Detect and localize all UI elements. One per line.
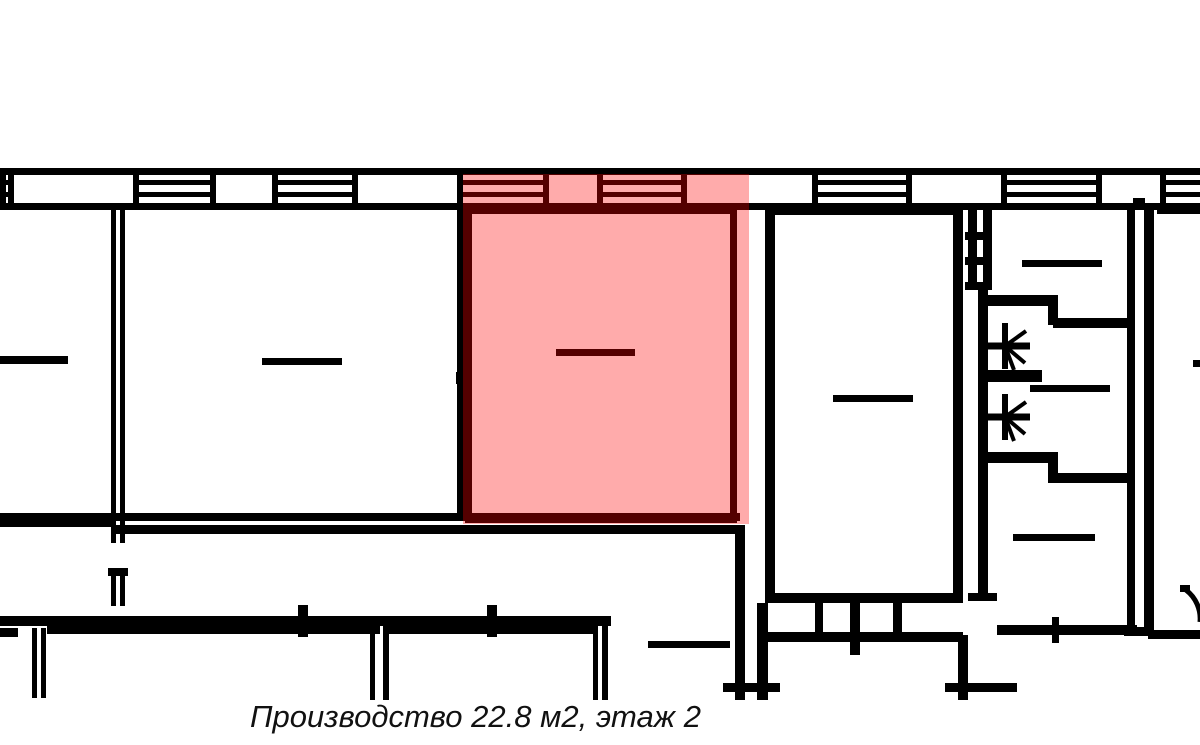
wall-segment	[723, 683, 780, 692]
floor-plan: Производство 22.8 м2, этаж 2	[0, 0, 1200, 745]
window-symbol	[138, 180, 210, 185]
window-divider	[352, 168, 358, 210]
window-symbol	[0, 192, 8, 197]
wall-segment	[383, 626, 389, 700]
wall-segment	[47, 626, 380, 634]
window-divider	[8, 168, 14, 210]
wall-segment	[111, 576, 116, 606]
window-symbol	[277, 192, 352, 197]
mark-line	[1193, 360, 1200, 367]
mark-line	[1013, 534, 1095, 541]
window-divider	[906, 168, 912, 210]
floor-plan-caption: Производство 22.8 м2, этаж 2	[250, 699, 701, 735]
wall-segment	[997, 625, 1137, 635]
mark-line	[262, 358, 342, 365]
window-symbol	[818, 180, 912, 185]
wall-segment	[988, 370, 1042, 382]
window-symbol	[138, 192, 210, 197]
door-arc	[1186, 590, 1200, 622]
window-symbol	[818, 192, 912, 197]
wall-segment	[765, 593, 963, 603]
mark-line	[1022, 260, 1102, 267]
wall-segment	[968, 205, 977, 290]
window-divider	[272, 168, 278, 210]
mark-line	[0, 356, 68, 364]
wall-segment	[32, 628, 37, 698]
wall-segment	[1053, 473, 1135, 483]
window-divider	[133, 168, 139, 210]
window-divider	[1160, 168, 1166, 210]
wall-segment	[602, 616, 608, 700]
window-symbol	[1165, 180, 1200, 185]
wall-segment	[386, 626, 597, 634]
wall-segment	[965, 257, 992, 265]
wall-segment	[953, 205, 963, 603]
wall-segment	[988, 452, 1057, 463]
wall-segment	[370, 626, 375, 700]
wall-segment	[1144, 205, 1154, 635]
wall-segment	[120, 208, 125, 543]
wall-segment	[111, 525, 745, 534]
wall-segment	[593, 626, 598, 700]
wall-segment	[1052, 617, 1059, 643]
window-symbol	[1007, 180, 1102, 185]
mark-line	[1030, 385, 1110, 392]
wall-segment	[735, 525, 745, 700]
wall-segment	[965, 232, 992, 240]
window-symbol	[1007, 192, 1102, 197]
wall-segment	[0, 628, 18, 637]
wall-segment	[850, 593, 860, 655]
window-symbol	[0, 180, 8, 185]
wall-segment	[983, 205, 992, 290]
window-divider	[812, 168, 818, 210]
floor-plan-svg	[0, 0, 1200, 745]
wall-segment	[968, 593, 997, 601]
wall-segment	[965, 282, 992, 290]
window-symbol	[1165, 192, 1200, 197]
wall-segment	[765, 205, 963, 215]
wall-segment	[108, 568, 128, 576]
wall-segment	[765, 205, 775, 603]
window-divider	[210, 168, 216, 210]
highlighted-room-overlay[interactable]	[463, 174, 749, 524]
wall-segment	[41, 628, 46, 698]
wall-segment	[945, 683, 1017, 692]
wall-segment	[1053, 318, 1135, 328]
mark-line	[648, 641, 730, 648]
wall-segment	[111, 208, 116, 543]
window-symbol	[277, 180, 352, 185]
mark-line	[833, 395, 913, 402]
window-divider	[1001, 168, 1007, 210]
wall-segment	[1127, 207, 1135, 635]
wall-segment	[1148, 630, 1200, 639]
wall-segment	[978, 290, 988, 601]
wall-segment	[763, 632, 963, 642]
wall-segment	[1133, 198, 1145, 208]
wall-segment	[988, 295, 1058, 306]
wall-segment	[815, 603, 823, 633]
symbols-group	[985, 323, 1200, 622]
wall-segment	[1157, 205, 1200, 214]
wall-segment	[0, 515, 111, 527]
window-divider	[0, 168, 6, 210]
window-divider	[1096, 168, 1102, 210]
window-divider	[457, 168, 463, 210]
wall-segment	[120, 576, 125, 606]
wall-segment	[958, 635, 968, 700]
wall-segment	[893, 603, 902, 633]
